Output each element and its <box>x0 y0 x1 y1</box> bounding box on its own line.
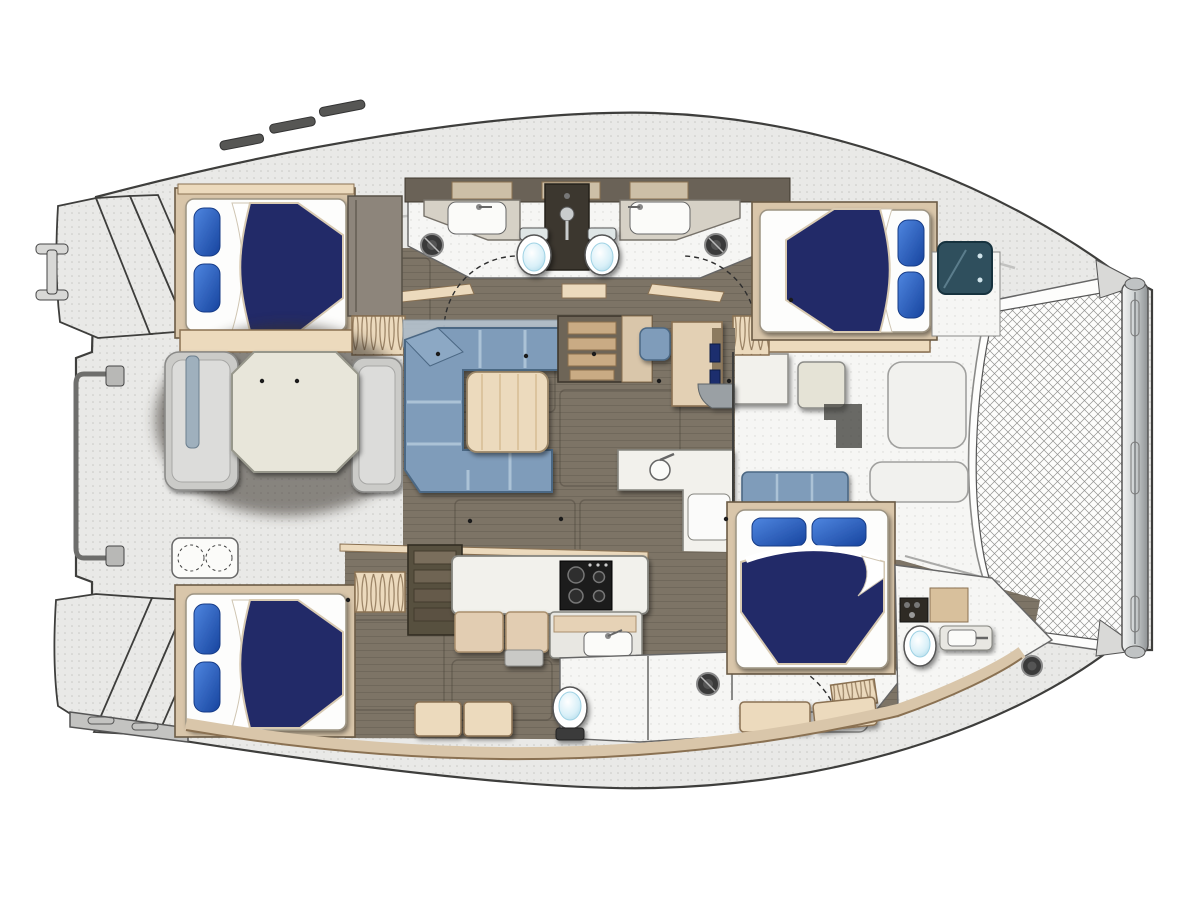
salon <box>403 316 740 572</box>
heads-port <box>405 178 790 278</box>
instrument <box>710 344 720 362</box>
forward-cockpit-sofa <box>742 472 848 506</box>
deck-plate-icon <box>421 234 443 256</box>
floorplan-page: Catamaran yacht interior floor plan, top… <box>0 0 1200 900</box>
instrument <box>710 370 720 384</box>
deck-plate-icon <box>1022 656 1042 676</box>
forward-seat <box>733 354 788 404</box>
galley-sink-unit <box>550 612 642 658</box>
bed-starboard-aft <box>186 594 346 730</box>
pillow <box>194 662 220 712</box>
pillow <box>752 518 806 546</box>
bed-starboard-forward <box>736 510 888 668</box>
forward-table <box>798 362 845 408</box>
toilet-icon <box>517 228 551 275</box>
pillow <box>898 272 924 318</box>
sink-icon <box>940 626 992 650</box>
cockpit-shelf <box>180 330 352 352</box>
floorplan-canvas <box>0 0 1200 900</box>
bed-port-forward <box>760 209 930 332</box>
deck-plate-icon <box>697 673 719 695</box>
electrical-panel <box>900 598 928 622</box>
cabin-starboard-aft <box>175 585 355 737</box>
pillow <box>194 208 220 256</box>
stern-locker-panel <box>172 538 238 578</box>
cabinet <box>930 588 968 622</box>
sink-icon <box>650 460 670 480</box>
cabin-port-aft <box>175 184 402 338</box>
pillow <box>194 264 220 312</box>
deck-plate-icon <box>705 234 727 256</box>
pillow <box>898 220 924 266</box>
galley-counter <box>452 556 648 614</box>
stove-icon <box>560 561 612 610</box>
toilet-icon <box>553 687 587 740</box>
companionway-stairs-port <box>558 316 652 382</box>
salon-table <box>467 372 548 452</box>
pillow <box>194 604 220 654</box>
bow-storage <box>932 242 1000 336</box>
cockpit-bench-port <box>165 352 238 490</box>
toilet-icon <box>904 626 936 666</box>
cockpit-bench-starboard <box>352 358 402 492</box>
cabin-starboard-forward <box>727 502 895 674</box>
bed-port-aft <box>186 199 346 331</box>
cabin-port-forward <box>752 202 937 340</box>
toilet-icon <box>585 228 619 275</box>
pillow <box>812 518 866 546</box>
ottoman <box>640 328 670 360</box>
tambour-locker <box>355 572 405 612</box>
galley <box>452 556 648 666</box>
cockpit-table <box>232 352 358 472</box>
